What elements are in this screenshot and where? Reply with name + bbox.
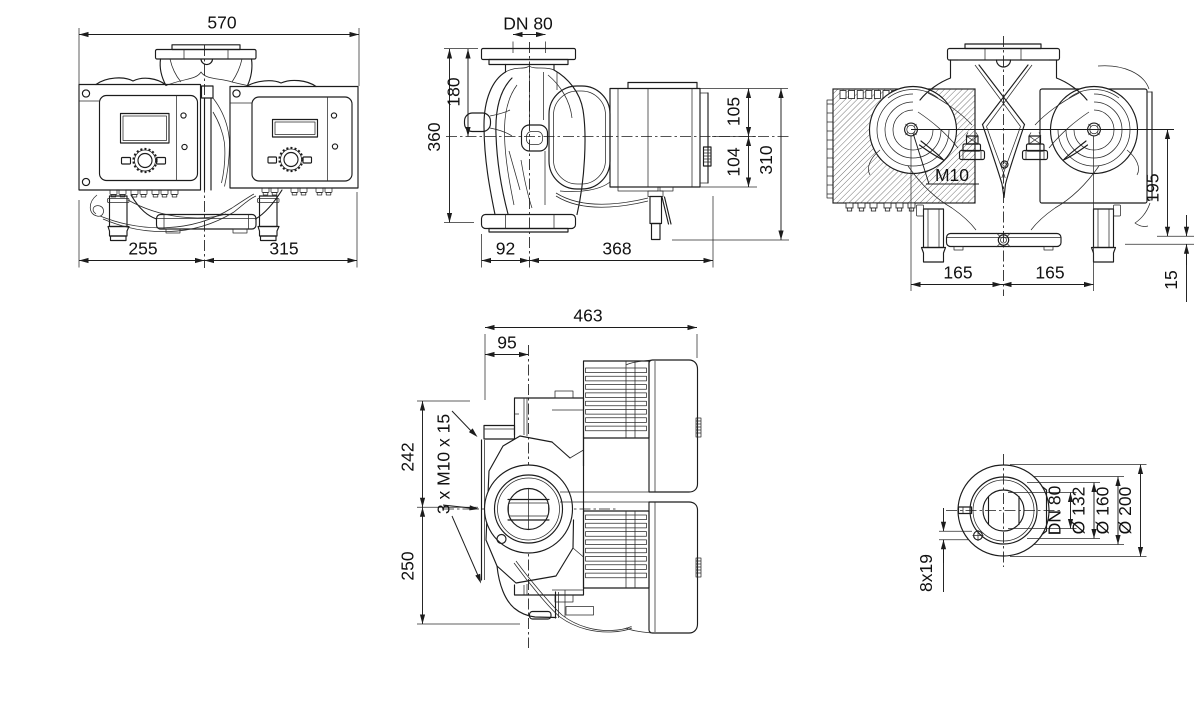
svg-text:310: 310 <box>756 145 776 174</box>
svg-text:DN 80: DN 80 <box>1045 485 1065 535</box>
svg-text:315: 315 <box>269 239 298 259</box>
svg-text:15: 15 <box>1161 270 1181 289</box>
svg-text:180: 180 <box>444 77 464 106</box>
svg-text:360: 360 <box>424 122 444 151</box>
svg-text:104: 104 <box>724 147 744 176</box>
svg-text:463: 463 <box>573 306 602 326</box>
svg-text:Ø 132: Ø 132 <box>1069 487 1089 535</box>
svg-text:DN 80: DN 80 <box>503 14 553 34</box>
svg-text:95: 95 <box>497 333 516 353</box>
svg-text:92: 92 <box>496 239 515 259</box>
svg-text:105: 105 <box>724 97 744 126</box>
svg-text:8x19: 8x19 <box>916 554 936 592</box>
svg-text:368: 368 <box>602 239 631 259</box>
svg-text:Ø 200: Ø 200 <box>1115 486 1135 534</box>
svg-text:242: 242 <box>398 442 418 471</box>
svg-text:165: 165 <box>943 263 972 283</box>
svg-text:250: 250 <box>398 551 418 580</box>
svg-text:195: 195 <box>1143 173 1163 202</box>
svg-text:3 x M10 x 15: 3 x M10 x 15 <box>434 414 454 514</box>
svg-text:255: 255 <box>128 239 157 259</box>
svg-text:165: 165 <box>1035 263 1064 283</box>
svg-text:M10: M10 <box>935 165 969 185</box>
svg-text:570: 570 <box>207 13 236 33</box>
svg-text:Ø 160: Ø 160 <box>1093 486 1113 534</box>
